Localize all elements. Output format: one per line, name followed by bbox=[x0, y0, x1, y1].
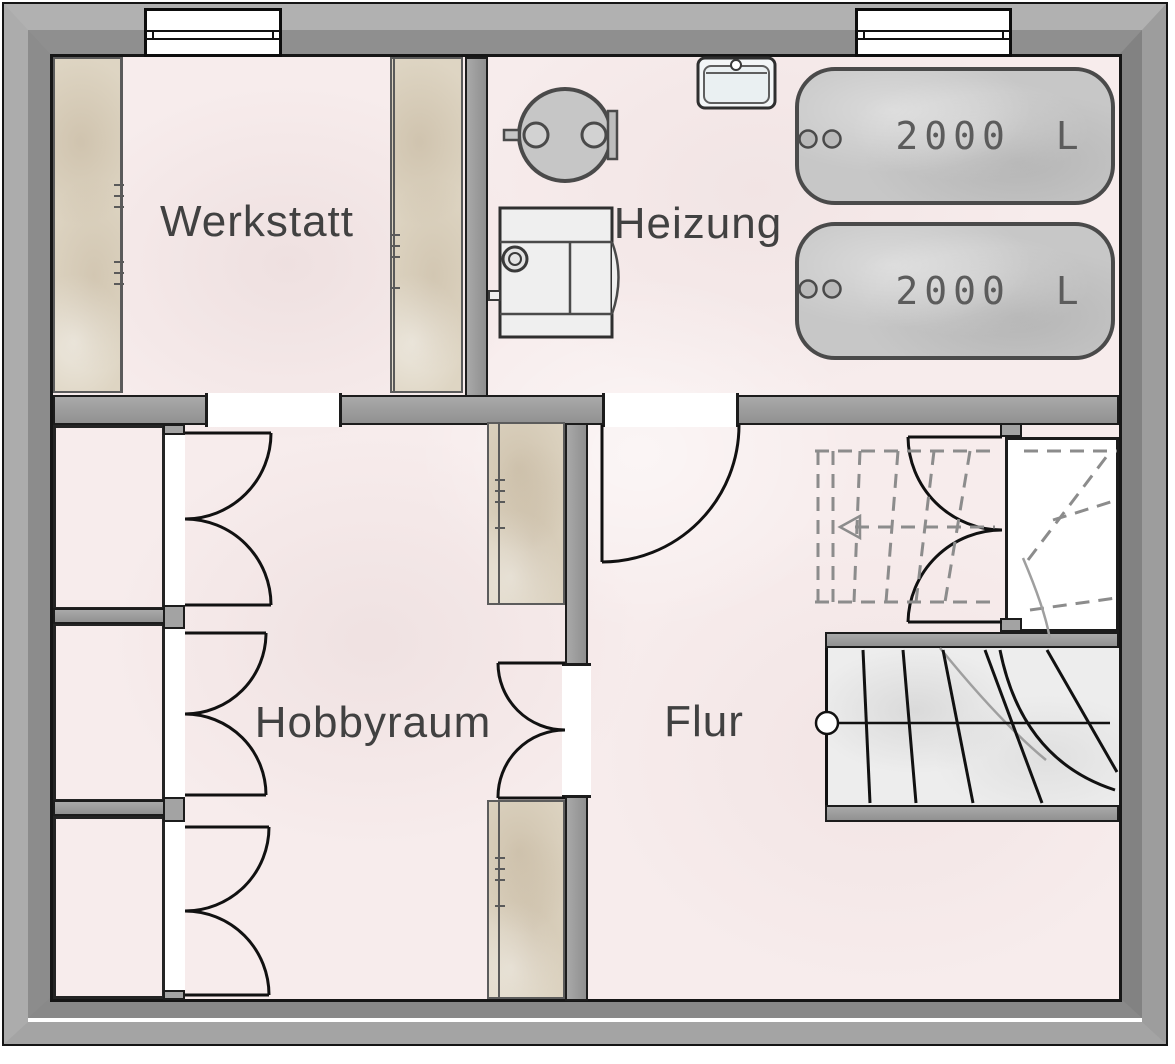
door-opening-hobbyraum-flur bbox=[562, 663, 591, 798]
strip-pillar-bottom bbox=[163, 990, 185, 1000]
room-label-flur: Flur bbox=[664, 697, 744, 747]
window-top-left bbox=[144, 8, 282, 57]
compartment-2 bbox=[53, 623, 165, 802]
room-label-heizung: Heizung bbox=[614, 199, 782, 249]
strip-pillar-mid2 bbox=[163, 797, 185, 822]
window-top-right bbox=[855, 8, 1012, 57]
compartment-door-strip bbox=[163, 425, 185, 999]
strip-pillar-mid1 bbox=[163, 605, 185, 629]
stair-doorframe-stub-top bbox=[1000, 423, 1022, 437]
stair-wall-bottom bbox=[825, 805, 1119, 822]
oil-tank-1-capacity: 2000 L bbox=[799, 71, 1111, 201]
oil-tank-2: 2000 L bbox=[795, 222, 1115, 360]
hobbyraum-cabinet-lower bbox=[487, 800, 565, 999]
compartment-1 bbox=[53, 425, 165, 610]
oil-tank-2-capacity: 2000 L bbox=[799, 226, 1111, 356]
compartment-partition-2 bbox=[53, 800, 165, 816]
wall-werkstatt-heizung bbox=[465, 57, 488, 397]
stair-void-upper-flight bbox=[1005, 437, 1119, 632]
door-opening-flur-heizung bbox=[602, 393, 739, 427]
werkstatt-shelf-left bbox=[53, 57, 122, 393]
opening-werkstatt-hobbyraum bbox=[205, 393, 342, 427]
stair-wall-top bbox=[825, 632, 1119, 648]
stair-treads-area bbox=[825, 648, 1119, 805]
floor-plan: 2000 L 2000 L bbox=[0, 0, 1175, 1064]
room-label-werkstatt: Werkstatt bbox=[160, 197, 354, 247]
compartment-3 bbox=[53, 816, 165, 999]
stair-doorframe-stub-bottom bbox=[1000, 618, 1022, 632]
strip-pillar-top bbox=[163, 424, 185, 435]
hobbyraum-cabinet-upper bbox=[487, 422, 565, 605]
compartment-partition-1 bbox=[53, 608, 165, 624]
room-label-hobbyraum: Hobbyraum bbox=[255, 698, 491, 748]
oil-tank-1: 2000 L bbox=[795, 67, 1115, 205]
werkstatt-shelf-right bbox=[390, 57, 463, 393]
